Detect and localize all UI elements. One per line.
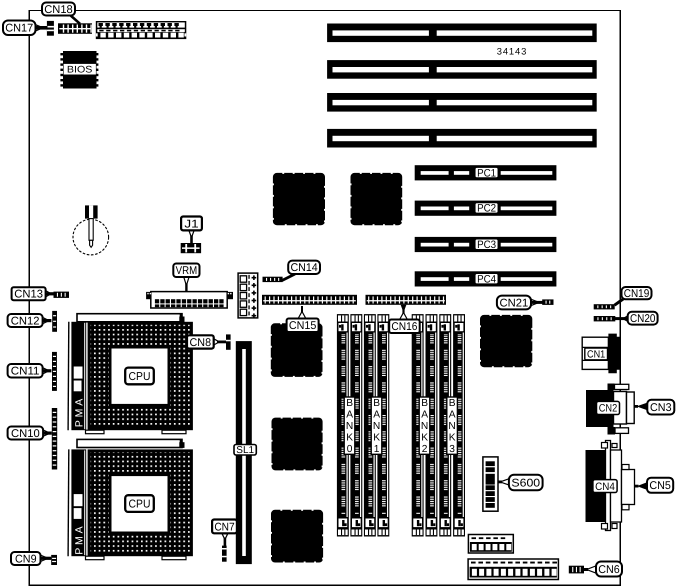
svg-text:K: K <box>449 432 456 443</box>
svg-text:A: A <box>449 409 456 420</box>
svg-text:B: B <box>421 398 428 409</box>
svg-text:B: B <box>346 398 353 409</box>
svg-text:PC2: PC2 <box>477 203 496 215</box>
svg-text:CN11: CN11 <box>11 366 40 378</box>
svg-text:CN6: CN6 <box>598 564 620 576</box>
svg-text:CN19: CN19 <box>624 288 650 300</box>
svg-text:P: P <box>74 548 86 555</box>
svg-text:A: A <box>74 399 86 406</box>
svg-text:CPU: CPU <box>129 499 151 511</box>
svg-text:K: K <box>346 432 353 443</box>
svg-text:CN20: CN20 <box>630 313 655 325</box>
svg-text:CN7: CN7 <box>214 521 234 533</box>
svg-text:P: P <box>73 420 85 427</box>
svg-text:CN9: CN9 <box>15 553 37 565</box>
svg-text:SL1: SL1 <box>236 445 254 456</box>
svg-text:B: B <box>373 398 380 409</box>
svg-text:CPU: CPU <box>129 371 151 383</box>
svg-text:CN15: CN15 <box>289 320 317 332</box>
svg-text:A: A <box>421 409 428 420</box>
svg-text:K: K <box>373 432 380 443</box>
svg-text:A: A <box>373 409 380 420</box>
svg-text:S600: S600 <box>511 477 540 489</box>
svg-text:B: B <box>449 398 456 409</box>
svg-text:0: 0 <box>347 444 353 455</box>
svg-text:M: M <box>74 409 86 418</box>
svg-text:CN12: CN12 <box>11 315 40 327</box>
svg-text:CN1: CN1 <box>587 350 605 361</box>
svg-text:CN21: CN21 <box>500 297 529 309</box>
svg-text:K: K <box>421 432 428 443</box>
svg-text:A: A <box>73 526 85 533</box>
svg-text:N: N <box>421 421 428 432</box>
svg-text:N: N <box>448 421 455 432</box>
svg-text:CN14: CN14 <box>290 262 317 274</box>
svg-text:PC3: PC3 <box>477 239 496 251</box>
svg-text:PC1: PC1 <box>477 167 496 179</box>
svg-text:CN16: CN16 <box>391 321 417 333</box>
svg-text:CN2: CN2 <box>599 403 618 415</box>
svg-text:CN10: CN10 <box>11 428 40 440</box>
svg-text:M: M <box>74 536 86 545</box>
svg-text:CN13: CN13 <box>14 289 43 301</box>
svg-text:VRM: VRM <box>176 265 198 277</box>
svg-text:A: A <box>346 409 353 420</box>
svg-text:3: 3 <box>449 444 455 455</box>
svg-text:N: N <box>373 421 380 432</box>
svg-text:PC4: PC4 <box>477 273 496 285</box>
svg-text:CN17: CN17 <box>5 23 33 35</box>
svg-text:2: 2 <box>422 444 428 455</box>
svg-text:CN4: CN4 <box>595 481 615 493</box>
svg-text:CN18: CN18 <box>44 4 73 16</box>
svg-text:34143: 34143 <box>497 46 528 57</box>
svg-text:CN3: CN3 <box>650 402 672 414</box>
svg-text:CN5: CN5 <box>649 480 671 492</box>
svg-text:N: N <box>346 421 353 432</box>
svg-text:1: 1 <box>374 444 380 455</box>
svg-text:BIOS: BIOS <box>67 64 93 75</box>
svg-text:J1: J1 <box>184 218 198 230</box>
svg-text:CN8: CN8 <box>190 337 212 349</box>
